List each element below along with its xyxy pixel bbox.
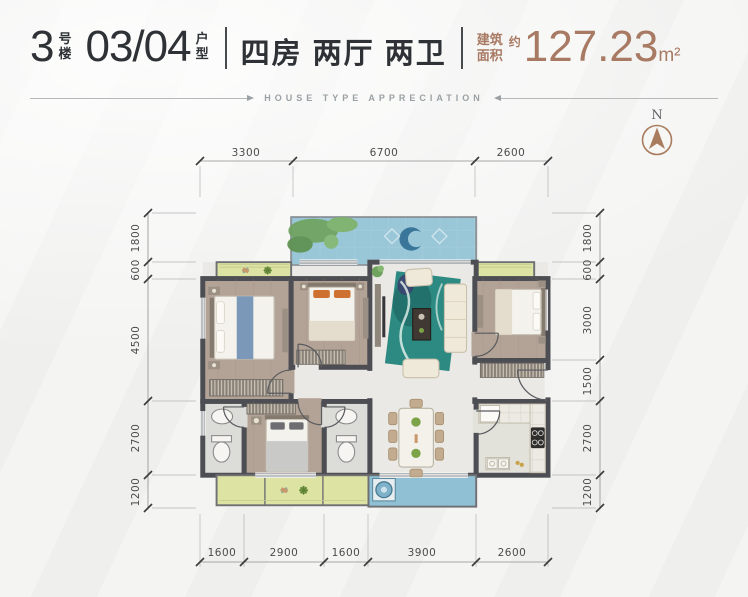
dim-label: 1600 <box>208 547 237 559</box>
building-area: 建筑面积 约 127.23 m² <box>477 20 681 74</box>
area-unit: m² <box>658 45 680 74</box>
subtitle-text: HOUSE TYPE APPRECIATION <box>264 93 484 103</box>
dim-label: 1200 <box>582 478 594 507</box>
subtitle-right-rule-arrow <box>496 98 718 99</box>
fridge <box>480 406 499 422</box>
area-value: 127.23 <box>524 20 659 74</box>
dim-label: 1200 <box>130 478 142 507</box>
laundry-balcony <box>368 475 476 506</box>
dim-label: 2700 <box>130 424 142 453</box>
north-arrow-icon <box>649 128 665 150</box>
dim-label: 3300 <box>232 147 261 159</box>
title-bar: 3 号楼 03/04 户型 四房 两厅 两卫 建筑面积 约 127.23 m² <box>30 20 720 74</box>
dim-left: 1800 600 4500 2700 1200 <box>130 209 196 512</box>
armchair <box>405 268 432 287</box>
bottom-balcony-green <box>217 475 369 505</box>
dim-label: 1800 <box>582 224 594 253</box>
dim-top: 3300 6700 2600 <box>196 147 552 197</box>
north-label: N <box>651 108 662 123</box>
tv <box>382 296 385 337</box>
dim-label: 1500 <box>582 367 594 396</box>
dim-label: 600 <box>130 259 142 281</box>
dim-label: 3000 <box>582 306 594 335</box>
tv-cabinet <box>375 284 381 347</box>
dim-label: 600 <box>582 259 594 281</box>
unit-suffix: 户型 <box>196 31 211 62</box>
floorplan-page: 3 号楼 03/04 户型 四房 两厅 两卫 建筑面积 约 127.23 m² … <box>0 0 748 597</box>
building-number: 3 <box>30 20 53 74</box>
wardrobe <box>247 404 295 414</box>
dim-label: 2900 <box>270 547 299 559</box>
header-divider <box>225 27 227 69</box>
dim-label: 1600 <box>332 547 361 559</box>
bathroom1-fixtures <box>212 409 233 462</box>
toilet <box>338 442 355 462</box>
header-divider <box>461 27 463 69</box>
bathroom2-fixtures <box>336 409 357 462</box>
dim-bottom: 1600 2900 1600 3900 2600 <box>196 514 552 567</box>
dim-label: 4500 <box>130 326 142 355</box>
bay-window-left <box>217 262 292 278</box>
dim-label: 2700 <box>582 424 594 453</box>
unit-number: 03/04 <box>85 20 190 74</box>
coffee-table <box>413 309 431 340</box>
toilet <box>213 442 230 462</box>
love-seat <box>403 359 439 378</box>
floor-plan <box>200 213 548 508</box>
dim-right: 1800 600 3000 1500 2700 1200 <box>552 209 604 512</box>
dim-label: 6700 <box>370 147 399 159</box>
sofa <box>444 284 466 352</box>
entry-opening <box>545 370 553 397</box>
bay-window-right <box>476 262 534 278</box>
subtitle-row: HOUSE TYPE APPRECIATION <box>30 93 718 103</box>
stove <box>531 427 545 448</box>
dresser <box>282 309 288 353</box>
subtitle-left-rule-arrow <box>30 98 252 99</box>
dim-label: 2600 <box>498 547 527 559</box>
dim-label: 3900 <box>408 547 437 559</box>
rooms-summary: 四房 两厅 两卫 <box>241 30 447 72</box>
moon-crescent <box>408 231 425 247</box>
dim-label: 1800 <box>130 224 142 253</box>
building-suffix: 号楼 <box>58 31 73 62</box>
corridor <box>291 367 370 401</box>
area-label: 建筑面积 <box>477 32 506 74</box>
area-approx: 约 <box>509 33 521 74</box>
top-balcony <box>287 217 476 265</box>
dim-label: 2600 <box>497 147 526 159</box>
north-compass: N <box>638 104 676 162</box>
toilet-tank <box>212 436 232 442</box>
toilet-tank <box>336 436 356 442</box>
